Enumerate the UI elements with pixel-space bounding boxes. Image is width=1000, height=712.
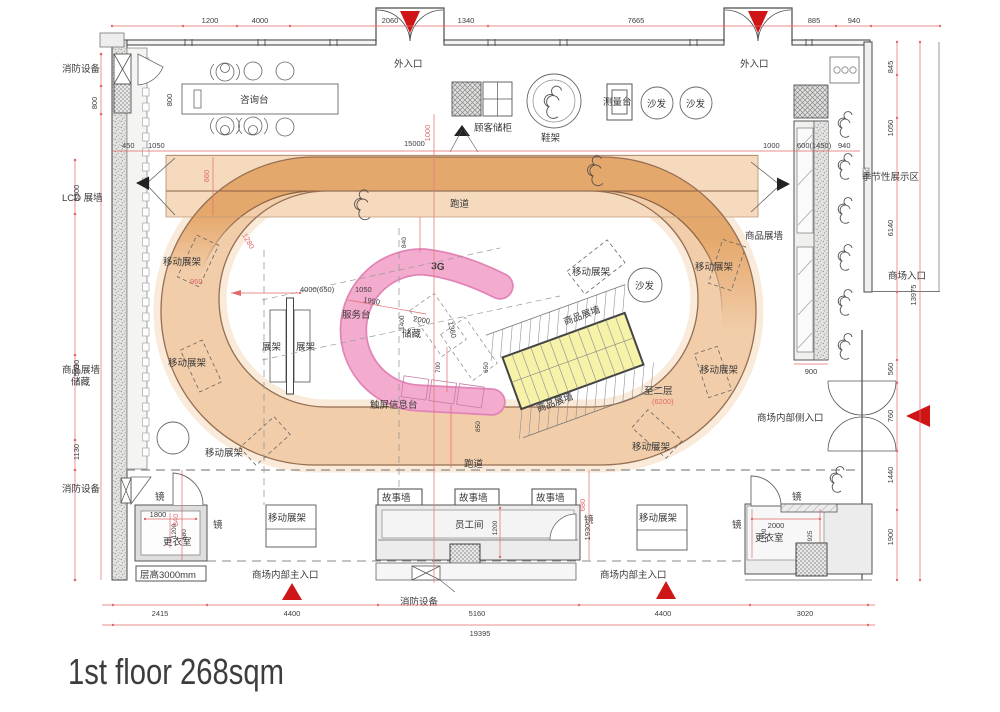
svg-text:15000: 15000 <box>404 139 425 148</box>
svg-text:800: 800 <box>90 97 99 110</box>
svg-text:展架: 展架 <box>296 342 316 353</box>
svg-text:3020: 3020 <box>797 609 814 618</box>
svg-text:移动展架: 移动展架 <box>163 256 202 268</box>
svg-text:外入口: 外入口 <box>394 58 423 70</box>
svg-text:商品展墙: 商品展墙 <box>62 364 101 376</box>
svg-text:1900: 1900 <box>886 529 895 546</box>
svg-text:900: 900 <box>805 367 818 376</box>
svg-text:850: 850 <box>475 421 482 432</box>
svg-text:商场内部侧入口: 商场内部侧入口 <box>757 412 824 424</box>
svg-text:咨询台: 咨询台 <box>240 94 269 106</box>
svg-text:移动展架: 移动展架 <box>695 261 734 273</box>
svg-text:800: 800 <box>165 94 174 107</box>
svg-text:1050: 1050 <box>148 141 165 150</box>
svg-text:储藏: 储藏 <box>71 376 91 388</box>
svg-text:商场内部主入口: 商场内部主入口 <box>600 569 667 581</box>
svg-text:940: 940 <box>848 16 861 25</box>
svg-text:跑道: 跑道 <box>464 458 484 470</box>
svg-text:1200: 1200 <box>761 528 768 543</box>
svg-text:4400: 4400 <box>284 609 301 618</box>
svg-text:季节性展示区: 季节性展示区 <box>862 171 920 183</box>
svg-text:1200: 1200 <box>202 16 219 25</box>
svg-text:1440: 1440 <box>886 467 895 484</box>
svg-text:沙发: 沙发 <box>686 98 706 110</box>
svg-text:服务台: 服务台 <box>342 309 371 321</box>
svg-text:镜: 镜 <box>155 491 165 503</box>
svg-text:450: 450 <box>122 141 135 150</box>
svg-text:故事墙: 故事墙 <box>382 492 411 504</box>
svg-text:更衣室: 更衣室 <box>755 532 784 544</box>
svg-text:展架: 展架 <box>262 342 282 353</box>
svg-text:镜: 镜 <box>213 519 223 531</box>
svg-text:移动展架: 移动展架 <box>639 512 678 524</box>
svg-text:移动展架: 移动展架 <box>268 512 307 524</box>
svg-text:沙发: 沙发 <box>647 98 667 110</box>
svg-text:840: 840 <box>171 514 180 527</box>
svg-text:1200: 1200 <box>492 520 499 535</box>
svg-text:4400: 4400 <box>655 609 672 618</box>
svg-text:移动展架: 移动展架 <box>572 266 611 278</box>
svg-text:移动展架: 移动展架 <box>168 357 207 369</box>
svg-text:700: 700 <box>435 362 442 373</box>
svg-text:商品展墙: 商品展墙 <box>745 230 784 242</box>
svg-text:镜: 镜 <box>732 519 742 531</box>
svg-text:4000: 4000 <box>252 16 269 25</box>
svg-text:2060: 2060 <box>382 16 399 25</box>
svg-text:移动展架: 移动展架 <box>205 447 244 459</box>
svg-text:840: 840 <box>401 237 408 248</box>
svg-text:1st floor 268sqm: 1st floor 268sqm <box>68 651 284 692</box>
svg-text:测量台: 测量台 <box>603 96 632 108</box>
svg-text:660: 660 <box>202 170 211 183</box>
svg-text:560: 560 <box>886 363 895 376</box>
svg-text:2000: 2000 <box>768 521 785 530</box>
svg-text:1000: 1000 <box>423 125 432 142</box>
svg-text:650: 650 <box>483 362 490 373</box>
svg-text:13975: 13975 <box>909 285 918 306</box>
svg-text:19395: 19395 <box>470 629 491 638</box>
svg-text:员工间: 员工间 <box>455 519 484 531</box>
svg-text:故事墙: 故事墙 <box>536 492 565 504</box>
svg-text:680: 680 <box>578 499 587 512</box>
svg-text:845: 845 <box>886 61 895 74</box>
svg-text:1050: 1050 <box>886 120 895 137</box>
svg-text:7665: 7665 <box>628 16 645 25</box>
svg-text:1930: 1930 <box>583 524 592 541</box>
svg-text:760: 760 <box>886 410 895 423</box>
svg-text:LCD 展墙: LCD 展墙 <box>62 192 103 204</box>
svg-text:鞋架: 鞋架 <box>541 132 561 144</box>
svg-text:1340: 1340 <box>458 16 475 25</box>
svg-text:至二层: 至二层 <box>644 386 673 397</box>
svg-text:1130: 1130 <box>72 444 81 460</box>
svg-text:1400: 1400 <box>399 315 406 330</box>
svg-text:940: 940 <box>838 141 851 150</box>
svg-text:移动展架: 移动展架 <box>700 364 739 376</box>
svg-text:镜: 镜 <box>792 491 802 503</box>
svg-text:故事墙: 故事墙 <box>459 492 488 504</box>
svg-text:顾客储柜: 顾客储柜 <box>474 122 513 134</box>
svg-text:消防设备: 消防设备 <box>62 483 101 495</box>
svg-text:4000(650): 4000(650) <box>300 285 335 294</box>
svg-text:1800: 1800 <box>150 510 167 519</box>
svg-text:层高3000mm: 层高3000mm <box>140 569 196 581</box>
svg-text:5160: 5160 <box>469 609 486 618</box>
svg-text:2415: 2415 <box>152 609 169 618</box>
svg-text:1050: 1050 <box>355 285 372 294</box>
svg-text:商场内部主入口: 商场内部主入口 <box>252 569 319 581</box>
svg-text:外入口: 外入口 <box>740 58 769 70</box>
svg-text:1000: 1000 <box>763 141 780 150</box>
svg-text:925: 925 <box>807 530 814 541</box>
svg-text:消防设备: 消防设备 <box>400 596 439 608</box>
svg-text:960: 960 <box>190 277 203 286</box>
svg-text:(6200): (6200) <box>652 397 674 406</box>
svg-text:跑道: 跑道 <box>450 198 470 210</box>
svg-text:触屏信息台: 触屏信息台 <box>370 399 418 411</box>
svg-text:600(1450): 600(1450) <box>797 141 832 150</box>
svg-text:885: 885 <box>808 16 821 25</box>
svg-text:消防设备: 消防设备 <box>62 63 101 75</box>
svg-text:沙发: 沙发 <box>635 280 655 292</box>
svg-text:移动展架: 移动展架 <box>632 441 671 453</box>
svg-text:6140: 6140 <box>886 220 895 237</box>
